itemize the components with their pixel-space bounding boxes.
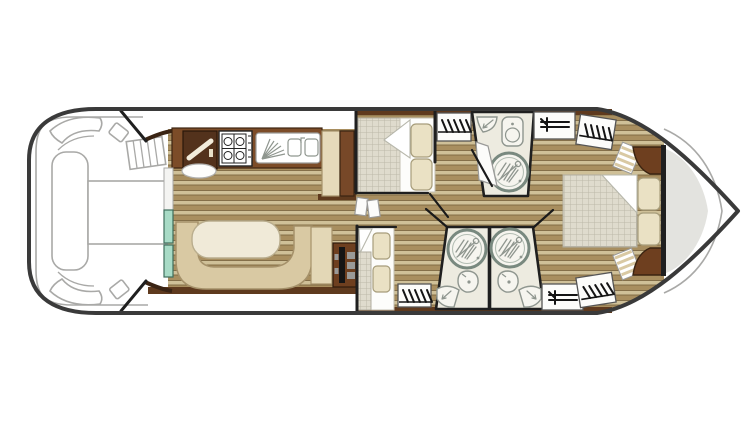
bed-blanket	[358, 252, 371, 310]
wardrobe	[576, 272, 616, 307]
pillow	[638, 178, 660, 210]
cabin-door-panel	[367, 199, 380, 217]
shower-icon	[491, 229, 529, 267]
pillow	[373, 266, 390, 292]
basin-icon	[458, 271, 478, 292]
galley-tall-cupboard	[340, 131, 354, 196]
salon-door-panel	[164, 168, 173, 210]
shelf-unit	[534, 112, 575, 139]
tv-cabinet	[333, 243, 356, 287]
floor-plan-canvas	[0, 0, 752, 422]
aft-bulkhead	[661, 145, 666, 276]
helm-seat	[182, 164, 216, 178]
salon-glass-door	[164, 210, 173, 243]
hob	[219, 131, 252, 166]
wardrobe	[437, 113, 471, 141]
salon-glass-door	[164, 245, 173, 277]
sink-unit	[256, 133, 320, 163]
helm-lever	[209, 149, 213, 157]
bed-blanket	[358, 118, 403, 192]
salon-sideboard	[311, 227, 332, 284]
salon-table	[192, 221, 280, 258]
bathroom-top	[472, 112, 534, 196]
side-deck-bottom	[148, 293, 356, 311]
bow-table-platform	[88, 181, 168, 244]
side-deck-top	[143, 110, 356, 129]
wardrobe	[398, 284, 431, 307]
boat-floor-plan	[0, 0, 752, 422]
pillow	[638, 213, 660, 245]
shower-icon	[448, 230, 486, 268]
galley-tall-cabinet	[322, 131, 340, 196]
bow-lounger	[52, 152, 88, 270]
pillow	[411, 124, 432, 157]
basin-icon	[498, 271, 518, 292]
cabin-door-panel	[355, 197, 368, 215]
toilet	[502, 117, 523, 146]
pillow	[411, 159, 432, 190]
pillow	[373, 233, 390, 259]
